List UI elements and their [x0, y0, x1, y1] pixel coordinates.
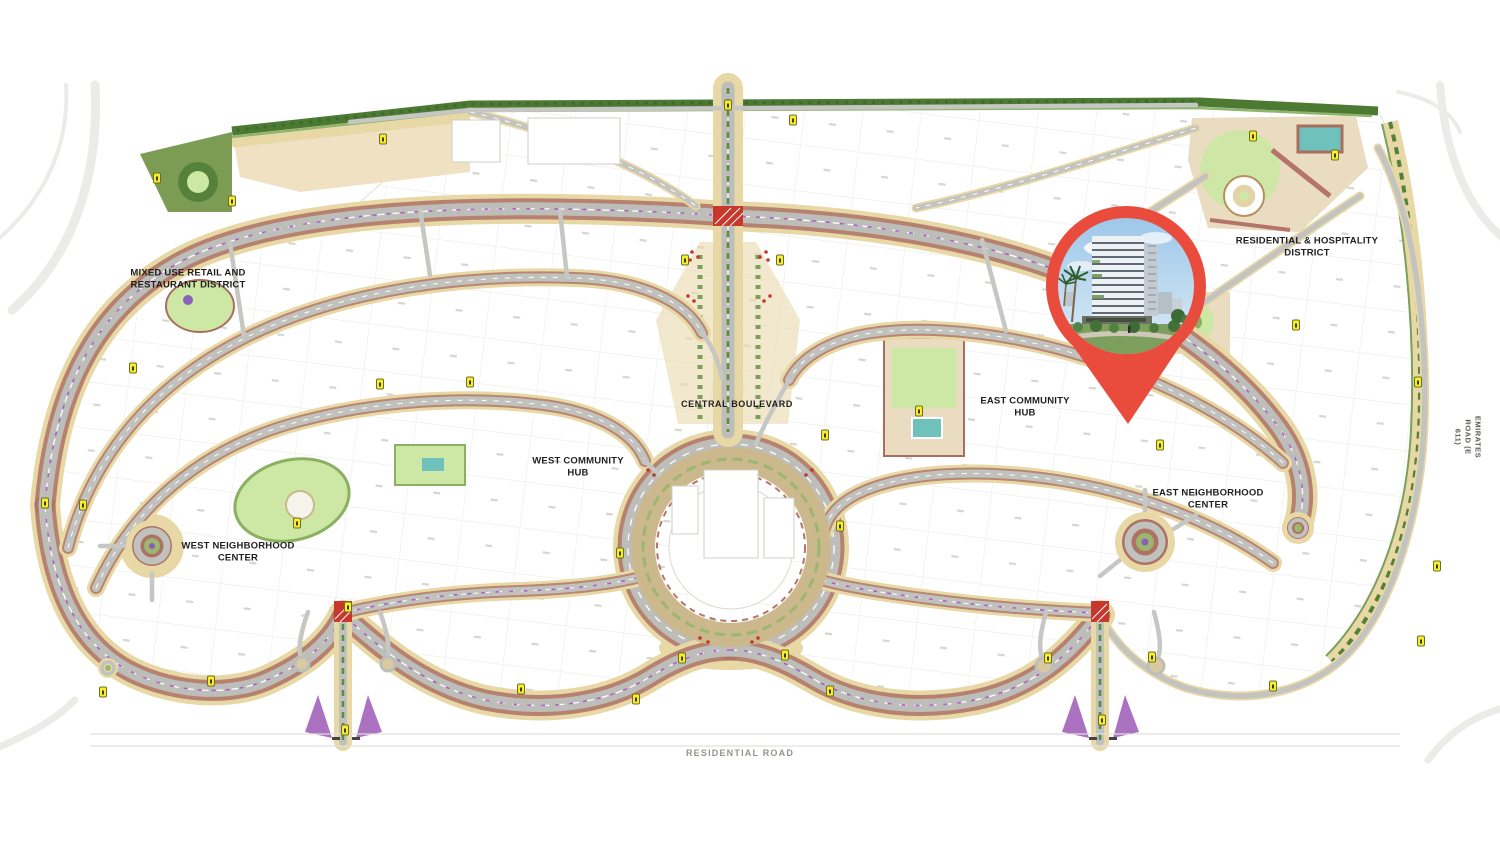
- plot-number-marker: [41, 498, 49, 509]
- plot-number-marker: [228, 196, 236, 207]
- plot-number-marker: [293, 518, 301, 529]
- plot-number-marker: [781, 650, 789, 661]
- plot-number-marker: [789, 115, 797, 126]
- parcel-buildings: [452, 118, 620, 164]
- plot-number-marker: [129, 363, 137, 374]
- plot-number-marker: [79, 500, 87, 511]
- plot-number-marker: [1148, 652, 1156, 663]
- plot-number-marker: [915, 406, 923, 417]
- map-artwork: [0, 0, 1500, 850]
- plot-number-marker: [99, 687, 107, 698]
- plot-number-marker: [1044, 653, 1052, 664]
- central-circle: [643, 459, 819, 635]
- plot-number-marker: [207, 676, 215, 687]
- plot-number-marker: [678, 653, 686, 664]
- plot-number-marker: [616, 548, 624, 559]
- plot-number-marker: [153, 173, 161, 184]
- plot-number-marker: [1414, 377, 1422, 388]
- plot-number-marker: [826, 686, 834, 697]
- plot-number-marker: [1417, 636, 1425, 647]
- plot-number-marker: [466, 377, 474, 388]
- plot-number-marker: [821, 430, 829, 441]
- pin-building-photo: [1058, 218, 1194, 354]
- plot-number-marker: [376, 379, 384, 390]
- plot-number-marker: [724, 100, 732, 111]
- plot-number-marker: [341, 725, 349, 736]
- plot-number-marker: [836, 521, 844, 532]
- masterplan-map: MIXED USE RETAIL AND RESTAURANT DISTRICT…: [0, 0, 1500, 850]
- plot-number-marker: [632, 694, 640, 705]
- plot-number-marker: [681, 255, 689, 266]
- plot-number-marker: [1331, 150, 1339, 161]
- plot-number-marker: [379, 134, 387, 145]
- plot-number-marker: [1249, 131, 1257, 142]
- plot-number-marker: [344, 602, 352, 613]
- plot-number-marker: [776, 255, 784, 266]
- plot-number-marker: [1433, 561, 1441, 572]
- plot-number-marker: [1292, 320, 1300, 331]
- plot-number-marker: [1156, 440, 1164, 451]
- residential-road-line: [90, 734, 1400, 746]
- plot-number-marker: [1098, 715, 1106, 726]
- plot-number-marker: [1269, 681, 1277, 692]
- plot-number-marker: [517, 684, 525, 695]
